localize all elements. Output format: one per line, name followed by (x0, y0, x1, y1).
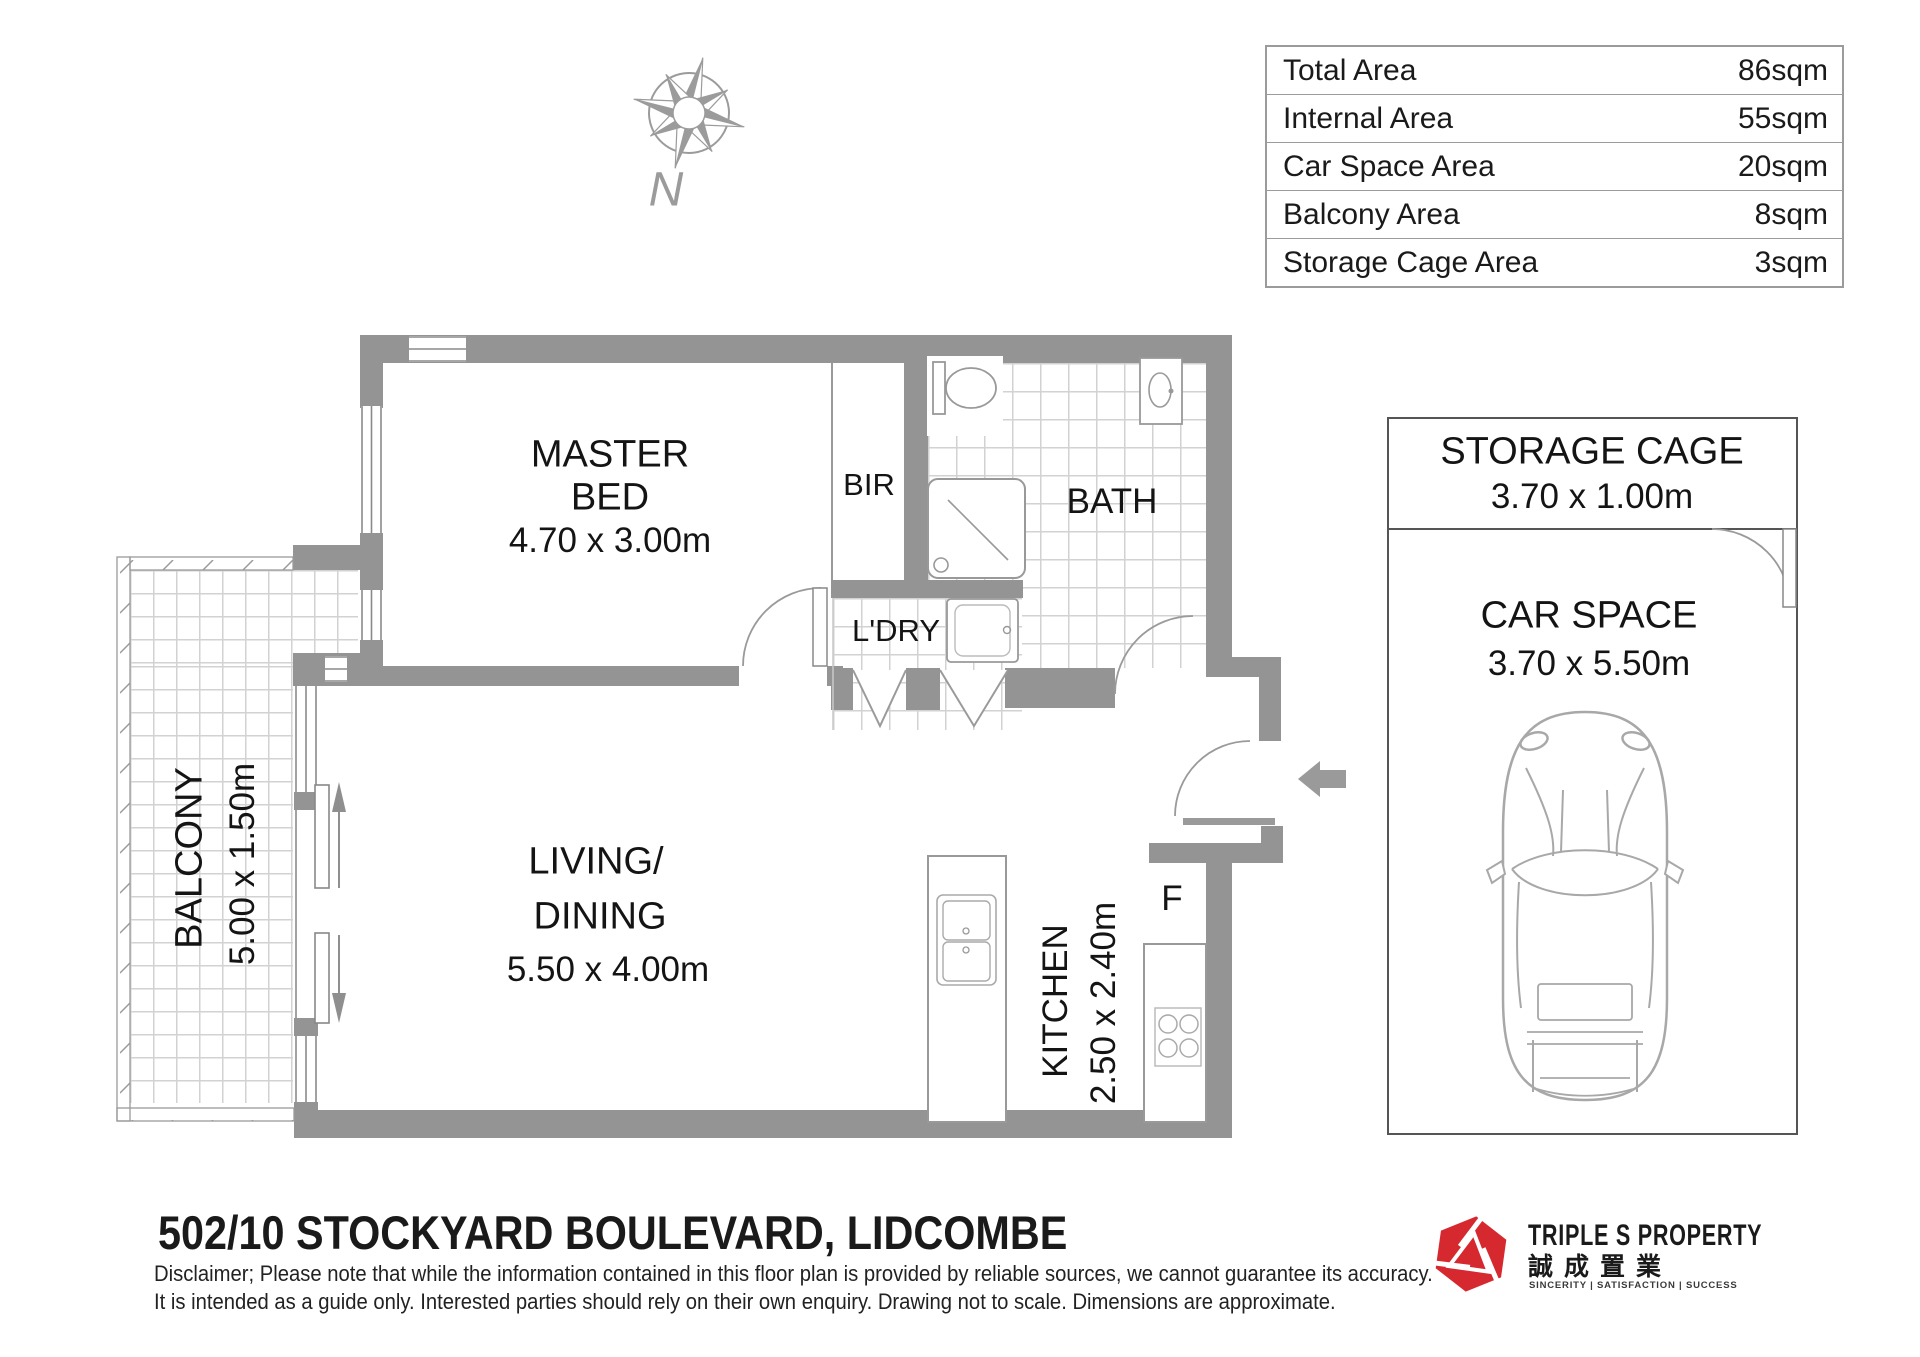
area-label: Total Area (1283, 54, 1416, 88)
wall-master-west-top (360, 363, 383, 408)
area-label: Balcony Area (1283, 198, 1460, 232)
entry-arrow-icon (1298, 761, 1346, 797)
table-row: Storage Cage Area 3sqm (1267, 238, 1842, 286)
storage-cage-divider (1389, 528, 1796, 530)
windows (295, 336, 466, 1102)
cooktop-icon (1155, 1008, 1201, 1066)
area-table: Total Area 86sqm Internal Area 55sqm Car… (1265, 45, 1844, 288)
bath-label: BATH (1067, 482, 1158, 522)
balcony-label: BALCONY (169, 767, 212, 949)
table-row: Car Space Area 20sqm (1267, 142, 1842, 190)
kitchen-sink-icon (937, 895, 996, 985)
wall-corner-block (293, 653, 383, 686)
disclaimer-line-1: Disclaimer; Please note that while the i… (154, 1261, 1433, 1287)
compass-north-label: N (649, 163, 684, 218)
wall-master-west-mid (360, 533, 383, 590)
wall-entry-top (1206, 657, 1281, 677)
area-value: 20sqm (1738, 150, 1828, 184)
car-space-dims: 3.70 x 5.50m (1488, 644, 1690, 684)
balcony-tiled-floor-upper (130, 570, 358, 666)
kitchen-label: KITCHEN (1036, 924, 1076, 1078)
master-door-leaf (813, 588, 827, 666)
wall-kitchen-stub (1261, 826, 1283, 843)
disclaimer-line-2: It is intended as a guide only. Interest… (154, 1289, 1336, 1315)
table-row: Total Area 86sqm (1267, 47, 1842, 94)
triple-s-logo-icon (1426, 1207, 1519, 1298)
table-row: Internal Area 55sqm (1267, 94, 1842, 142)
balcony-dims: 5.00 x 1.50m (223, 763, 263, 965)
area-label: Storage Cage Area (1283, 246, 1538, 280)
bir-label: BIR (843, 467, 895, 503)
area-value: 8sqm (1755, 198, 1828, 232)
wall-kitchen-north (1149, 843, 1283, 863)
area-label: Internal Area (1283, 102, 1453, 136)
fridge-label: F (1161, 879, 1182, 919)
wall-ldry-stub-mid (906, 668, 940, 710)
ldry-label: L'DRY (852, 613, 940, 649)
entry-door-arc (1175, 741, 1250, 816)
wall-bir-east (904, 363, 928, 582)
kitchen-bench (1144, 944, 1206, 1122)
storage-cage-label: STORAGE CAGE (1440, 431, 1743, 474)
master-bed-label-2: BED (571, 477, 649, 520)
balcony-tiled-floor (130, 666, 293, 1103)
living-dims: 5.50 x 4.00m (507, 950, 709, 990)
living-label-2: DINING (534, 896, 667, 939)
area-value: 3sqm (1755, 246, 1828, 280)
wall-top (360, 335, 1232, 363)
wall-balcony-top-join (293, 545, 360, 570)
car-space-storage-box (1387, 417, 1798, 1135)
kitchen-island (928, 856, 1006, 1122)
floor-plan-page: Total Area 86sqm Internal Area 55sqm Car… (0, 0, 1920, 1357)
page-title: 502/10 STOCKYARD BOULEVARD, LIDCOMBE (158, 1205, 1067, 1260)
entry-threshold (1183, 818, 1275, 825)
wall-bottom (294, 1110, 1232, 1138)
logo-chinese-name: 誠成置業 (1528, 1247, 1672, 1283)
storage-cage-dims: 3.70 x 1.00m (1491, 477, 1693, 517)
master-bed-label-1: MASTER (531, 434, 689, 477)
table-row: Balcony Area 8sqm (1267, 190, 1842, 238)
wall-east-lower (1206, 863, 1232, 1138)
area-value: 55sqm (1738, 102, 1828, 136)
wall-ldry-north (831, 580, 1023, 598)
area-label: Car Space Area (1283, 150, 1495, 184)
master-door-arc (743, 588, 821, 666)
master-bed-dims: 4.70 x 3.00m (509, 521, 711, 561)
wall-slider-jamb-upper (294, 792, 318, 810)
area-value: 86sqm (1738, 54, 1828, 88)
wall-slider-jamb-lower (294, 1018, 318, 1036)
compass-rose-icon (620, 44, 758, 182)
wall-master-south (383, 666, 739, 686)
wall-bath-south (1005, 668, 1115, 708)
living-label-1: LIVING/ (528, 841, 663, 884)
balcony-sliding-door (315, 782, 346, 1023)
car-space-label: CAR SPACE (1481, 595, 1698, 638)
kitchen-dims: 2.50 x 2.40m (1084, 902, 1124, 1104)
wall-ldry-stub-left (831, 668, 853, 710)
wall-entry-jamb (1259, 677, 1281, 741)
logo-tagline: SINCERITY | SATISFACTION | SUCCESS (1529, 1280, 1737, 1291)
wall-east-upper (1206, 335, 1232, 677)
